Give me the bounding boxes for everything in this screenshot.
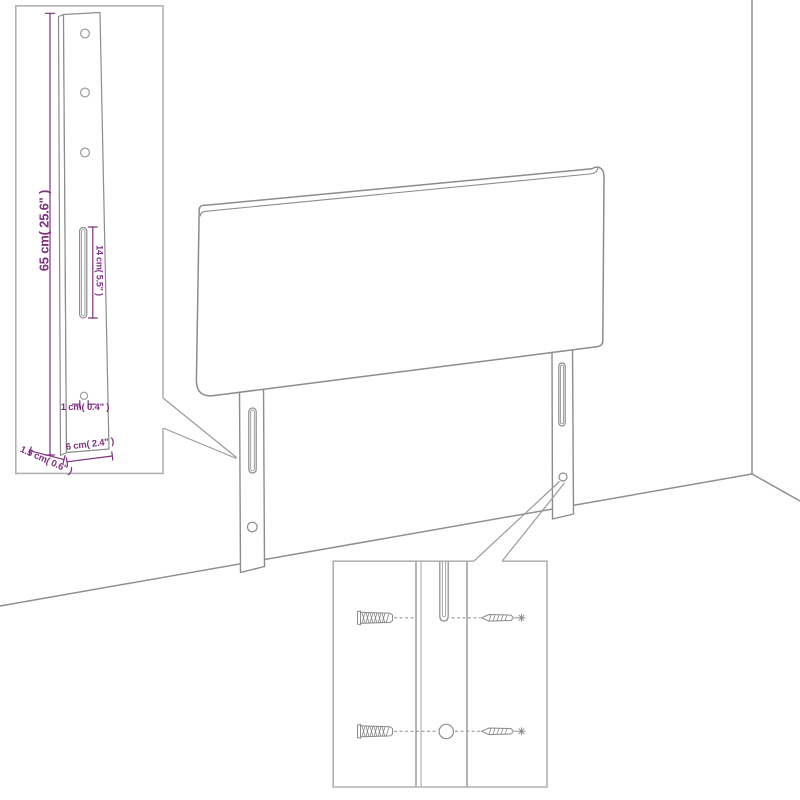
dimension-label-leg-height: 65 cm( 25.6" ) xyxy=(38,176,51,286)
headboard-panel-outline xyxy=(196,167,604,396)
screw-bottom xyxy=(482,727,526,735)
wall-plug-bottom xyxy=(358,725,393,739)
headboard-panel xyxy=(196,167,604,396)
inset-leg-small-hole xyxy=(80,392,87,399)
left-callout-upper xyxy=(163,398,237,458)
headboard-right-leg xyxy=(552,345,574,519)
screw-head-icon xyxy=(518,727,526,735)
left-leg-hole xyxy=(248,522,258,532)
headboard-left-leg xyxy=(240,384,265,573)
left-leg-slot-inner xyxy=(251,410,255,471)
inset-leg-hole-2 xyxy=(81,88,90,97)
screw-top xyxy=(482,614,526,622)
dim-line-width-6cm xyxy=(67,452,113,466)
mounting-detail-inset xyxy=(333,561,547,787)
bottom-inset-callout-lines xyxy=(474,482,565,562)
inset-leg-slot-inner xyxy=(82,230,85,316)
right-leg-hole xyxy=(559,473,567,481)
floor-wall-edge-left xyxy=(0,474,752,606)
bottom-callout-left xyxy=(474,482,560,562)
strip-slot-inner xyxy=(442,562,445,617)
screw-head-icon xyxy=(518,614,526,622)
dimension-label-slot-length: 14 cm( 5.5" ) xyxy=(95,231,104,311)
strip-hole xyxy=(439,724,453,738)
right-leg-slot-inner xyxy=(561,365,564,424)
product-dimension-diagram: 65 cm( 25.6" ) 14 cm( 5.5" ) 1 cm( 0.4" … xyxy=(0,0,800,800)
left-callout-lower xyxy=(163,428,237,459)
left-inset-callout-lines xyxy=(163,398,237,459)
bottom-callout-right xyxy=(502,483,565,561)
diagram-canvas xyxy=(0,0,800,800)
inset-leg-hole-3 xyxy=(81,148,90,157)
wall-plug-top xyxy=(358,611,393,625)
strip-slot xyxy=(440,562,448,621)
alignment-dashed-lines xyxy=(394,618,518,732)
dimension-label-hole-diameter: 1 cm( 0.4" ) xyxy=(40,403,130,413)
floor-wall-edge-right xyxy=(752,474,800,501)
inset-leg-hole-1 xyxy=(81,29,90,38)
